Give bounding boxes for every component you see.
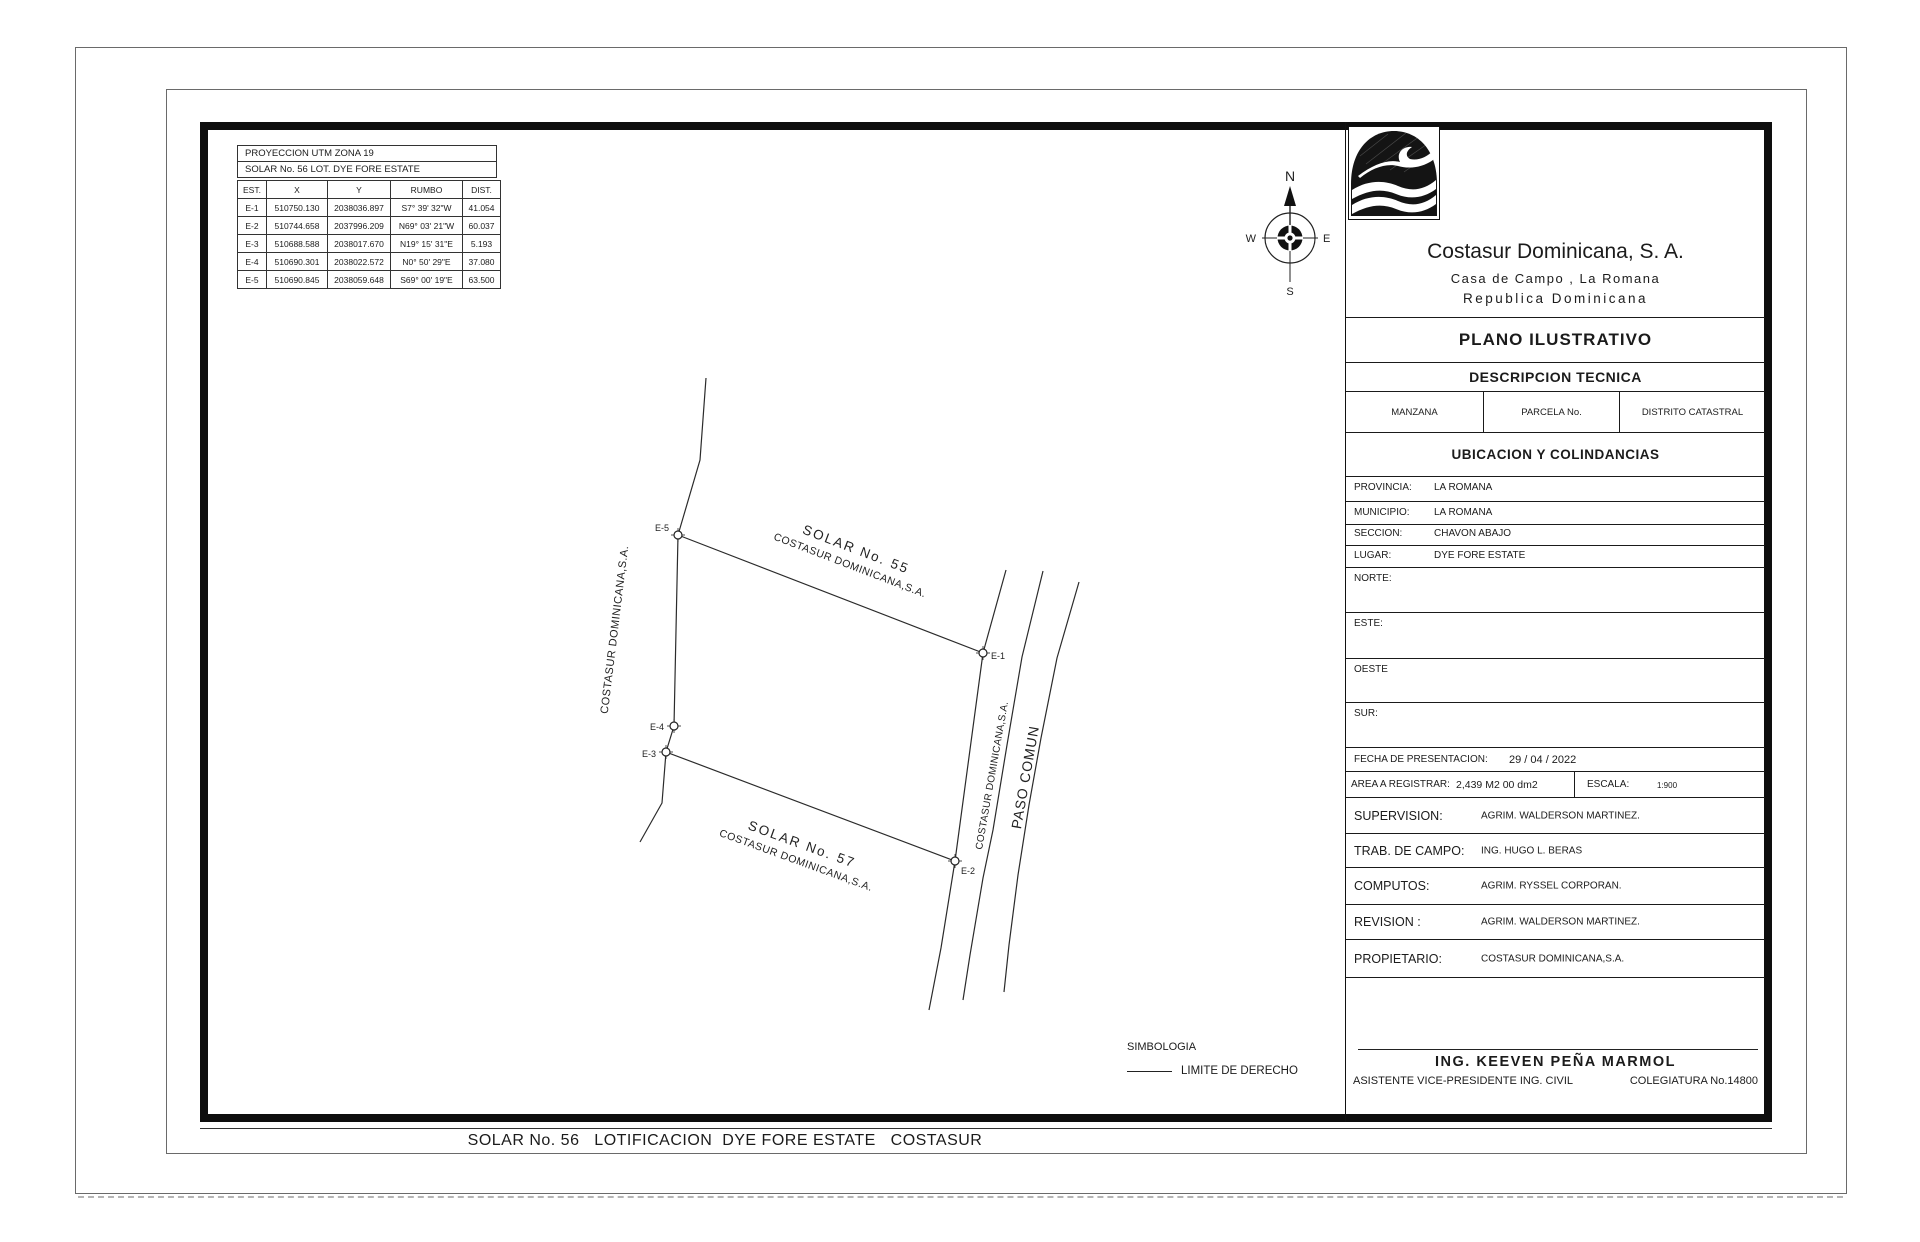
point-marker-e4 [667, 719, 681, 733]
sur-label: SUR: [1354, 708, 1378, 719]
cadastral-row: MANZANA PARCELA No. DISTRITO CATASTRAL [1346, 392, 1765, 433]
trab-campo-row: TRAB. DE CAMPO: ING. HUGO L. BERAS [1346, 834, 1765, 868]
survey-plan-page: PROYECCION UTM ZONA 19 SOLAR No. 56 LOT.… [0, 0, 1920, 1242]
road-name-text: PASO COMUN [1008, 724, 1042, 830]
fecha-label: FECHA DE PRESENTACION: [1354, 754, 1488, 765]
computos-label: COMPUTOS: [1354, 879, 1429, 893]
supervision-label: SUPERVISION: [1354, 809, 1443, 823]
norte-row: NORTE: [1346, 568, 1765, 613]
compass-n: N [1285, 168, 1295, 184]
signature-line [1358, 1049, 1758, 1050]
seccion-value: CHAVON ABAJO [1434, 528, 1511, 539]
oeste-label: OESTE [1354, 664, 1388, 675]
manzana-cell: MANZANA [1346, 392, 1484, 432]
solar-57-label: SOLAR No. 57 COSTASUR DOMINICANA,S.A. [718, 809, 881, 894]
propietario-label: PROPIETARIO: [1354, 952, 1442, 966]
point-labels: E-5 E-4 E-3 E-1 E-2 [642, 523, 1005, 876]
revision-label: REVISION : [1354, 915, 1421, 929]
point-marker-e2 [948, 854, 962, 868]
lugar-label: LUGAR: [1354, 550, 1391, 561]
este-row: ESTE: [1346, 613, 1765, 659]
area-value: 2,439 M2 00 dm2 [1456, 779, 1538, 791]
area-cell: AREA A REGISTRAR: 2,439 M2 00 dm2 [1346, 772, 1575, 797]
seccion-row: SECCION: CHAVON ABAJO [1346, 525, 1765, 546]
lugar-value: DYE FORE ESTATE [1434, 550, 1525, 561]
municipio-value: LA ROMANA [1434, 507, 1492, 518]
road-edge-above [983, 570, 1006, 653]
boundary-extension-north [678, 378, 706, 535]
compass-e: E [1323, 233, 1330, 245]
trab-campo-value: ING. HUGO L. BERAS [1481, 845, 1582, 856]
compass-w: W [1246, 233, 1257, 245]
label-e2: E-2 [961, 866, 975, 876]
company-section: Costasur Dominicana, S. A. Casa de Campo… [1346, 122, 1765, 318]
area-label: AREA A REGISTRAR: [1351, 779, 1450, 790]
survey-points [659, 528, 990, 868]
este-label: ESTE: [1354, 618, 1383, 629]
escala-cell: ESCALA: 1:900 [1575, 772, 1765, 797]
municipio-row: MUNICIPIO: LA ROMANA [1346, 502, 1765, 525]
company-header: Costasur Dominicana, S. A. Casa de Campo… [1346, 240, 1765, 306]
west-owner-text: COSTASUR DOMINICANA,S.A. [599, 545, 632, 715]
bottom-dashed-line [78, 1196, 1843, 1198]
plan-type-row: PLANO ILUSTRATIVO [1346, 318, 1765, 363]
distrito-cell: DISTRITO CATASTRAL [1620, 392, 1765, 432]
provincia-label: PROVINCIA: [1354, 482, 1412, 493]
fecha-value: 29 / 04 / 2022 [1509, 754, 1576, 766]
west-owner-label: COSTASUR DOMINICANA,S.A. [599, 545, 632, 715]
costasur-logo [1348, 126, 1440, 220]
point-marker-e3 [659, 745, 673, 759]
computos-value: AGRIM. RYSSEL CORPORAN. [1481, 881, 1622, 892]
limit-line-icon [1127, 1071, 1172, 1072]
escala-value: 1:900 [1657, 781, 1677, 790]
section-title-row: DESCRIPCION TECNICA [1346, 363, 1765, 392]
engineer-title: ASISTENTE VICE-PRESIDENTE ING. CIVIL [1353, 1075, 1573, 1087]
engineer-license: COLEGIATURA No.14800 [1630, 1075, 1758, 1087]
road-edge-below [929, 861, 955, 1010]
road-name-label: PASO COMUN [1008, 724, 1042, 830]
location-title: UBICACION Y COLINDANCIAS [1451, 447, 1659, 462]
title-block: Costasur Dominicana, S. A. Casa de Campo… [1345, 122, 1765, 1122]
boundary-extension-south [640, 752, 666, 842]
provincia-value: LA ROMANA [1434, 482, 1492, 493]
road-owner-label: COSTASUR DOMINICANA,S.A. [974, 701, 1011, 851]
point-marker-e5 [671, 528, 685, 542]
company-name: Costasur Dominicana, S. A. [1346, 240, 1765, 264]
compass-icon: N S W E [1246, 168, 1331, 298]
provincia-row: PROVINCIA: LA ROMANA [1346, 477, 1765, 502]
computos-row: COMPUTOS: AGRIM. RYSSEL CORPORAN. [1346, 868, 1765, 905]
seccion-label: SECCION: [1354, 528, 1402, 539]
company-address: Casa de Campo , La Romana [1346, 271, 1765, 286]
norte-label: NORTE: [1354, 573, 1392, 584]
label-e4: E-4 [650, 722, 664, 732]
fecha-row: FECHA DE PRESENTACION: 29 / 04 / 2022 [1346, 748, 1765, 772]
location-title-row: UBICACION Y COLINDANCIAS [1346, 433, 1765, 477]
sheet-title: SOLAR No. 56 LOTIFICACION DYE FORE ESTAT… [160, 1129, 1290, 1152]
lugar-row: LUGAR: DYE FORE ESTATE [1346, 546, 1765, 568]
label-e5: E-5 [655, 523, 669, 533]
engineer-name: ING. KEEVEN PEÑA MARMOL [1346, 1054, 1765, 1070]
label-e3: E-3 [642, 749, 656, 759]
propietario-value: COSTASUR DOMINICANA,S.A. [1481, 953, 1624, 964]
sur-row: SUR: [1346, 703, 1765, 748]
escala-label: ESCALA: [1587, 779, 1629, 790]
area-row: AREA A REGISTRAR: 2,439 M2 00 dm2 ESCALA… [1346, 772, 1765, 798]
legend-title: SIMBOLOGIA [1127, 1041, 1196, 1053]
compass-s: S [1286, 286, 1293, 298]
revision-value: AGRIM. WALDERSON MARTINEZ. [1481, 917, 1640, 928]
company-country: Republica Dominicana [1346, 291, 1765, 306]
point-marker-e1 [976, 646, 990, 660]
solar-55-label: SOLAR No. 55 COSTASUR DOMINICANA,S.A. [772, 513, 935, 600]
legend-limit-label: LIMITE DE DERECHO [1181, 1065, 1298, 1077]
parcel-polygon [666, 535, 983, 861]
trab-campo-label: TRAB. DE CAMPO: [1354, 844, 1464, 858]
parcel-boundary [640, 378, 1079, 1010]
propietario-row: PROPIETARIO: COSTASUR DOMINICANA,S.A. [1346, 940, 1765, 978]
label-e1: E-1 [991, 651, 1005, 661]
plan-type: PLANO ILUSTRATIVO [1459, 330, 1652, 350]
section-title: DESCRIPCION TECNICA [1469, 369, 1642, 385]
revision-row: REVISION : AGRIM. WALDERSON MARTINEZ. [1346, 905, 1765, 940]
road-owner-text: COSTASUR DOMINICANA,S.A. [974, 701, 1011, 851]
supervision-row: SUPERVISION: AGRIM. WALDERSON MARTINEZ. [1346, 798, 1765, 834]
municipio-label: MUNICIPIO: [1354, 507, 1410, 518]
signature-section: ING. KEEVEN PEÑA MARMOL ASISTENTE VICE-P… [1346, 978, 1765, 1122]
parcela-cell: PARCELA No. [1484, 392, 1620, 432]
legend-entry: LIMITE DE DERECHO [1127, 1065, 1298, 1077]
supervision-value: AGRIM. WALDERSON MARTINEZ. [1481, 810, 1640, 821]
oeste-row: OESTE [1346, 659, 1765, 703]
